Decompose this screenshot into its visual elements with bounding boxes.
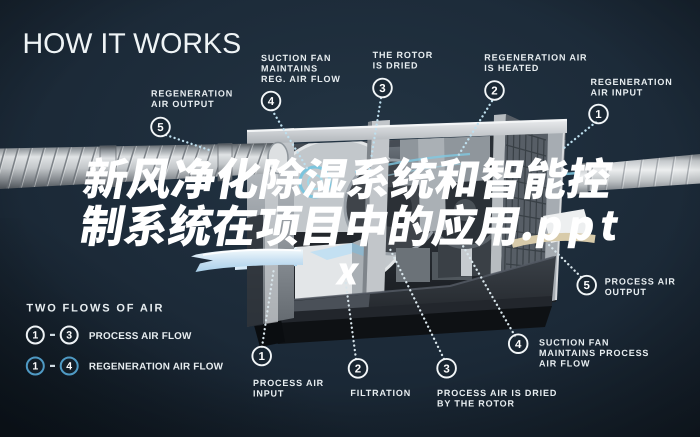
svg-text:REG. AIR FLOW: REG. AIR FLOW (261, 74, 341, 84)
svg-text:3: 3 (379, 83, 385, 95)
svg-text:2: 2 (491, 86, 497, 98)
svg-text:5: 5 (157, 122, 164, 134)
svg-text:3: 3 (443, 363, 449, 375)
svg-text:IS DRIED: IS DRIED (373, 61, 419, 71)
svg-text:AIR OUTPUT: AIR OUTPUT (151, 99, 215, 109)
svg-text:1: 1 (595, 109, 602, 121)
svg-text:MAINTAINS: MAINTAINS (261, 64, 318, 74)
svg-text:REGENERATION: REGENERATION (151, 89, 233, 99)
svg-text:4: 4 (268, 96, 275, 108)
svg-text:REGENERATION AIR: REGENERATION AIR (484, 53, 587, 63)
svg-text:REGENERATION AIR FLOW: REGENERATION AIR FLOW (89, 362, 224, 373)
svg-text:IS HEATED: IS HEATED (484, 63, 539, 73)
svg-text:OUTPUT: OUTPUT (605, 287, 647, 297)
svg-text:FILTRATION: FILTRATION (350, 388, 411, 398)
svg-text:1: 1 (258, 351, 265, 363)
svg-text:3: 3 (66, 330, 72, 342)
svg-text:AIR FLOW: AIR FLOW (539, 359, 590, 369)
svg-text:4: 4 (66, 361, 72, 373)
svg-text:2: 2 (355, 363, 361, 375)
svg-text:AIR INPUT: AIR INPUT (591, 88, 644, 98)
svg-text:SUCTION FAN: SUCTION FAN (539, 338, 609, 348)
svg-text:BY THE ROTOR: BY THE ROTOR (437, 399, 515, 409)
svg-text:TWO FLOWS OF AIR: TWO FLOWS OF AIR (26, 303, 164, 315)
svg-text:PROCESS AIR FLOW: PROCESS AIR FLOW (89, 331, 192, 342)
svg-text:INPUT: INPUT (253, 388, 284, 398)
svg-text:PROCESS AIR: PROCESS AIR (605, 277, 676, 287)
svg-text:PROCESS AIR IS DRIED: PROCESS AIR IS DRIED (437, 388, 557, 398)
svg-text:5: 5 (583, 280, 590, 292)
svg-text:HOW IT WORKS: HOW IT WORKS (23, 28, 242, 60)
svg-text:MAINTAINS PROCESS: MAINTAINS PROCESS (539, 348, 649, 358)
svg-text:SUCTION FAN: SUCTION FAN (261, 53, 331, 63)
svg-text:THE ROTOR: THE ROTOR (373, 50, 434, 60)
svg-text:REGENERATION: REGENERATION (591, 77, 673, 87)
svg-text:1: 1 (32, 330, 38, 342)
svg-text:1: 1 (32, 361, 38, 373)
svg-text:4: 4 (515, 339, 522, 351)
svg-text:PROCESS AIR: PROCESS AIR (253, 378, 324, 388)
